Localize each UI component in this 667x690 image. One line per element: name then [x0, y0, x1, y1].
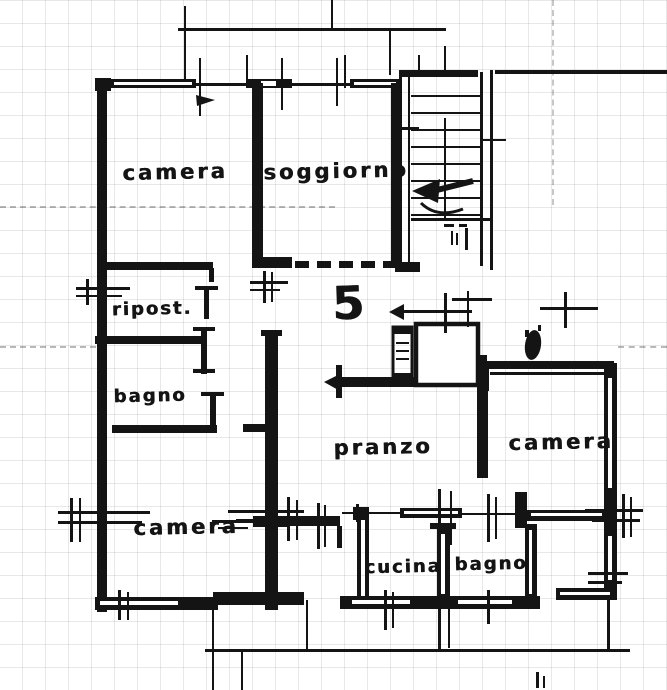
staircase [391, 70, 667, 272]
corridor-wall [228, 330, 304, 610]
cucina-bagno-walls [340, 507, 540, 650]
floor-plan-drawing [0, 0, 667, 690]
floor-plan-scan: camera soggiorno ripost. bagno 5 pranzo … [0, 0, 667, 690]
room-label-pranzo: pranzo [333, 434, 433, 460]
room-label-camera-nw: camera [122, 159, 228, 185]
camera-nw-wall [252, 83, 263, 263]
stair-direction-arrow [412, 179, 473, 203]
balcony-lines [205, 600, 630, 690]
entry-dashed-line [295, 261, 397, 268]
room-label-bagno-s: bagno [454, 553, 528, 576]
room-label-camera-e: camera [508, 429, 614, 455]
room-label-camera-sw: camera [133, 514, 239, 540]
elevator-area [324, 291, 598, 398]
camera-sw-walls [95, 590, 304, 620]
service-duct [393, 327, 412, 380]
room-label-bagno-w: bagno [113, 385, 187, 408]
room-label-soggiorno: soggiorno [263, 157, 409, 184]
unit-number: 5 [331, 275, 365, 330]
scan-smudge [523, 325, 543, 361]
elevator-shaft [416, 324, 478, 385]
room-label-cucina: cucina [364, 556, 442, 579]
room-label-ripostiglio: ripost. [112, 298, 193, 321]
